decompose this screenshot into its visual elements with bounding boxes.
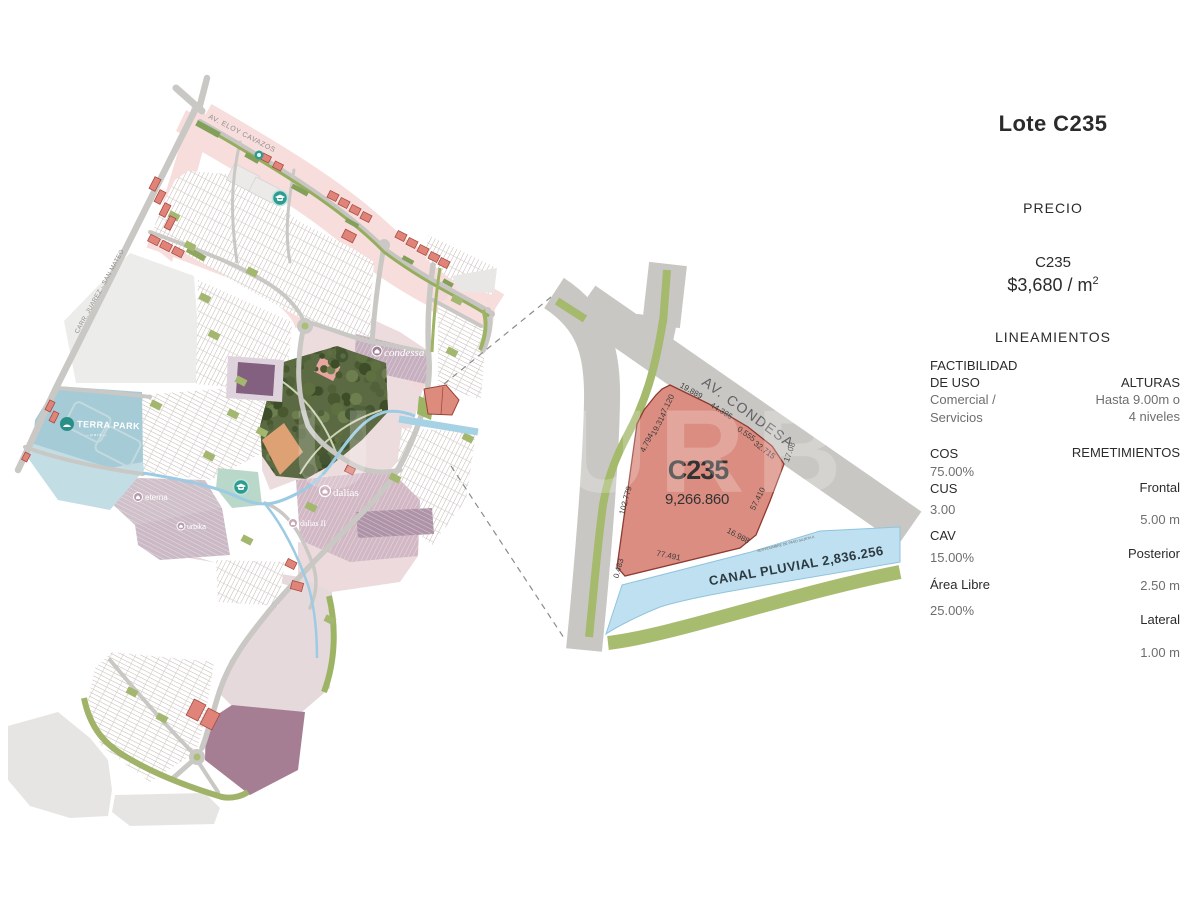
svg-text:eterna: eterna xyxy=(145,493,168,502)
svg-text:U: U xyxy=(292,387,373,512)
svg-text:— p a r k —: — p a r k — xyxy=(85,432,106,437)
svg-text:URB: URB xyxy=(562,386,854,518)
svg-text:dalias II: dalias II xyxy=(300,519,326,528)
svg-text:urbika: urbika xyxy=(187,524,206,531)
svg-text:condessa: condessa xyxy=(384,347,425,359)
